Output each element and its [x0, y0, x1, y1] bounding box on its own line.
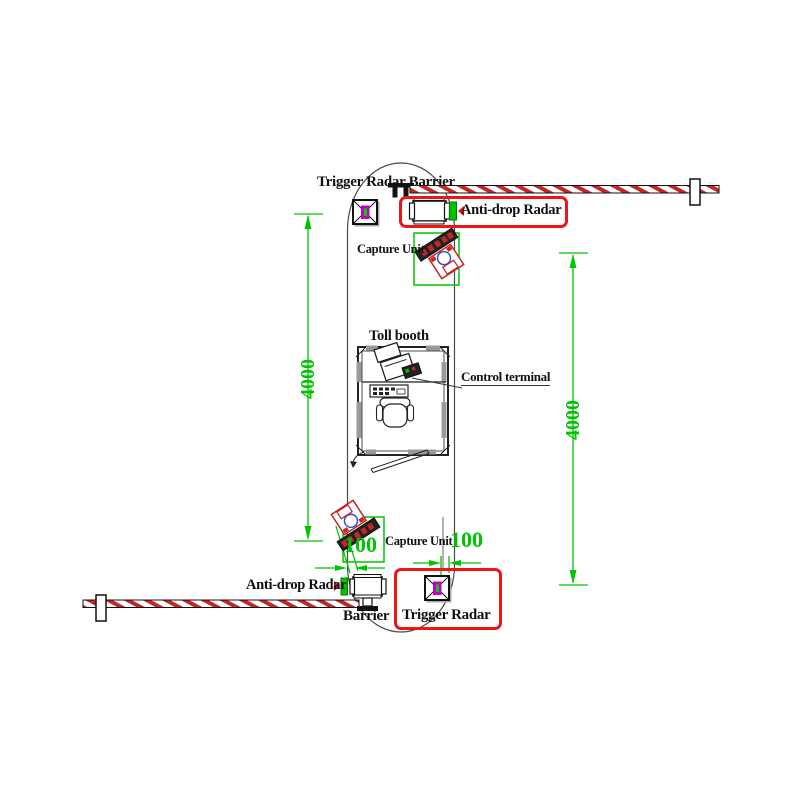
label-trigger-radar-bottom: Trigger Radar — [402, 607, 490, 624]
label-capture-unit-top: Capture Unit — [357, 243, 424, 257]
dim-text-left-4000: 4000 — [298, 344, 318, 414]
top-barrier-arm — [410, 186, 719, 194]
cad-linework — [0, 0, 800, 800]
label-trigger-radar-barrier: Trigger Radar Barrier — [317, 174, 455, 191]
booth-keyboard — [370, 385, 408, 397]
trigger-radar-icon — [353, 200, 379, 226]
label-capture-unit-bottom: Capture Unit — [385, 535, 452, 549]
dim-text-bottom-left-100: 100 — [344, 534, 377, 556]
label-anti-drop-radar-bottom: Anti-drop Radar — [246, 578, 346, 594]
bottom-barrier-arm — [83, 600, 359, 608]
label-anti-drop-radar-top: Anti-drop Radar — [461, 203, 561, 219]
dim-text-right-4000: 4000 — [563, 385, 583, 455]
top-barrier-post — [690, 179, 700, 205]
label-control-terminal: Control terminal — [461, 370, 550, 386]
label-toll-booth: Toll booth — [369, 329, 429, 345]
label-barrier-bottom: Barrier — [343, 608, 389, 625]
bottom-barrier-post — [96, 595, 106, 621]
toll-lane-drawing: Trigger Radar Barrier Anti-drop Radar Ca… — [0, 0, 800, 800]
dim-text-bottom-right-100: 100 — [450, 529, 483, 551]
